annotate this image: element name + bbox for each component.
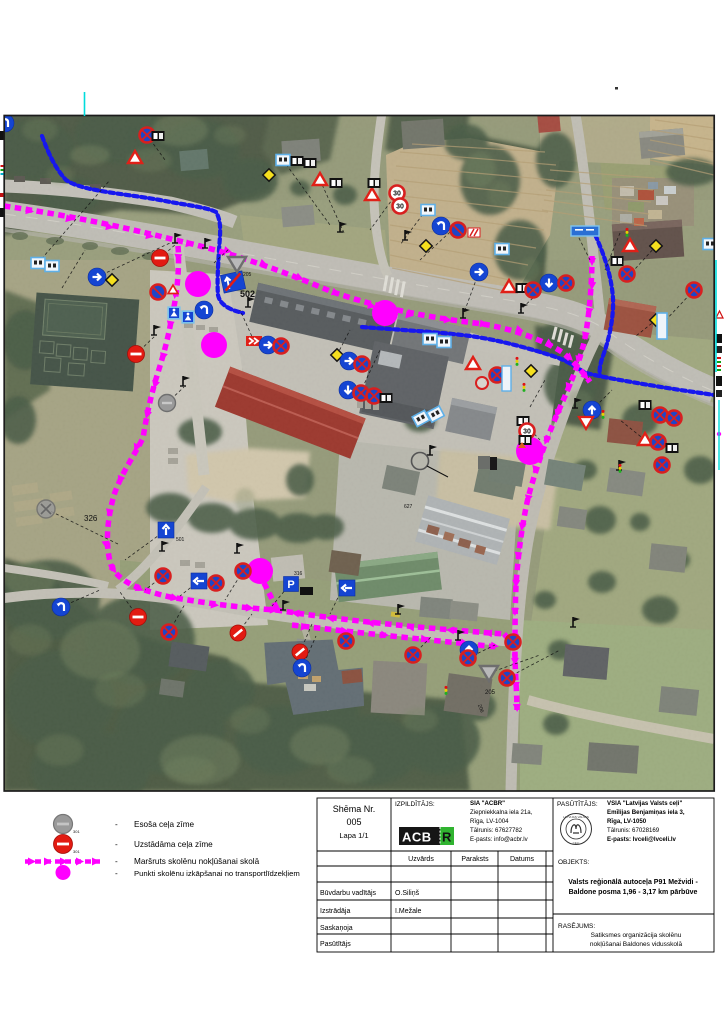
svg-text:Valsts reģionālā autoceļa P91: Valsts reģionālā autoceļa P91 Mežvidi -	[568, 878, 698, 886]
svg-text:316: 316	[294, 571, 303, 577]
svg-text:SIA "ACBR": SIA "ACBR"	[470, 800, 505, 807]
svg-text:Būvdarbu vadītājs: Būvdarbu vadītājs	[320, 890, 377, 897]
svg-text:301: 301	[73, 829, 80, 834]
svg-text:Rīga, LV-1050: Rīga, LV-1050	[607, 818, 647, 825]
svg-text:nokļūšanai Baldones vidusskolā: nokļūšanai Baldones vidusskolā	[590, 941, 683, 948]
svg-text:Shēma Nr.: Shēma Nr.	[333, 804, 376, 814]
svg-text:CEĻI: CEĻI	[573, 841, 580, 845]
svg-text:ACB: ACB	[402, 830, 432, 845]
svg-text:Baldone posma 1,96 - 3,17 km p: Baldone posma 1,96 - 3,17 km pārbūve	[569, 889, 698, 896]
svg-text:E-pasts: lvceli@lvceli.lv: E-pasts: lvceli@lvceli.lv	[607, 836, 677, 843]
svg-text:Punkti skolēnu izkāpšanai no t: Punkti skolēnu izkāpšanai no transportlī…	[134, 869, 300, 878]
svg-text:502: 502	[240, 289, 255, 299]
svg-text:-: -	[115, 820, 118, 829]
svg-text:Pasūtītājs: Pasūtītājs	[320, 941, 351, 948]
svg-text:O.Siliņš: O.Siliņš	[395, 890, 420, 897]
svg-text:LATVIJAS VALSTS: LATVIJAS VALSTS	[563, 815, 589, 819]
svg-text:Izstrādāja: Izstrādāja	[320, 908, 350, 915]
svg-text:Emīlijas Benjamiņas iela 3,: Emīlijas Benjamiņas iela 3,	[607, 809, 685, 816]
svg-text:Tālrunis: 67028169: Tālrunis: 67028169	[607, 827, 660, 834]
svg-text:Tālrunis: 67627782: Tālrunis: 67627782	[470, 827, 523, 834]
svg-text:VSIA "Latvijas Valsts ceļi": VSIA "Latvijas Valsts ceļi"	[607, 800, 682, 807]
svg-text:IZPILDĪTĀJS:: IZPILDĪTĀJS:	[395, 800, 435, 808]
svg-text:-: -	[115, 857, 118, 866]
svg-text:Uzstādāma ceļa zīme: Uzstādāma ceļa zīme	[134, 840, 213, 849]
svg-text:Uzvārds: Uzvārds	[408, 856, 434, 863]
svg-text:-: -	[115, 869, 118, 878]
svg-text:PASŪTĪTĀJS:: PASŪTĪTĀJS:	[557, 800, 598, 808]
svg-text:Datums: Datums	[510, 856, 535, 863]
svg-text:Satiksmes organizācija skolēnu: Satiksmes organizācija skolēnu	[591, 932, 682, 939]
svg-text:Ziepniekkalna iela 21a,: Ziepniekkalna iela 21a,	[470, 809, 533, 816]
svg-text:301: 301	[73, 849, 80, 854]
svg-text:Rīga, LV-1004: Rīga, LV-1004	[470, 818, 509, 825]
svg-text:501: 501	[176, 537, 185, 543]
svg-text:627: 627	[404, 504, 413, 510]
svg-text:Lapa 1/1: Lapa 1/1	[339, 831, 368, 840]
svg-text:RASĒJUMS:: RASĒJUMS:	[558, 922, 595, 930]
svg-text:E-pasts: info@acbr.lv: E-pasts: info@acbr.lv	[470, 836, 529, 843]
svg-text:326: 326	[84, 514, 98, 523]
svg-text:005: 005	[346, 817, 361, 827]
svg-text:OBJEKTS:: OBJEKTS:	[558, 859, 590, 866]
svg-text:205: 205	[485, 690, 496, 696]
svg-text:Esoša ceļa zīme: Esoša ceļa zīme	[134, 820, 195, 829]
svg-text:Paraksts: Paraksts	[461, 856, 489, 863]
svg-text:R: R	[442, 830, 452, 845]
svg-text:205: 205	[243, 272, 252, 278]
svg-text:Saskaņoja: Saskaņoja	[320, 925, 353, 932]
svg-text:-: -	[115, 840, 118, 849]
svg-text:I.Mežale: I.Mežale	[395, 908, 422, 915]
svg-text:Maršruts skolēnu nokļūšanai sk: Maršruts skolēnu nokļūšanai skolā	[134, 857, 260, 866]
